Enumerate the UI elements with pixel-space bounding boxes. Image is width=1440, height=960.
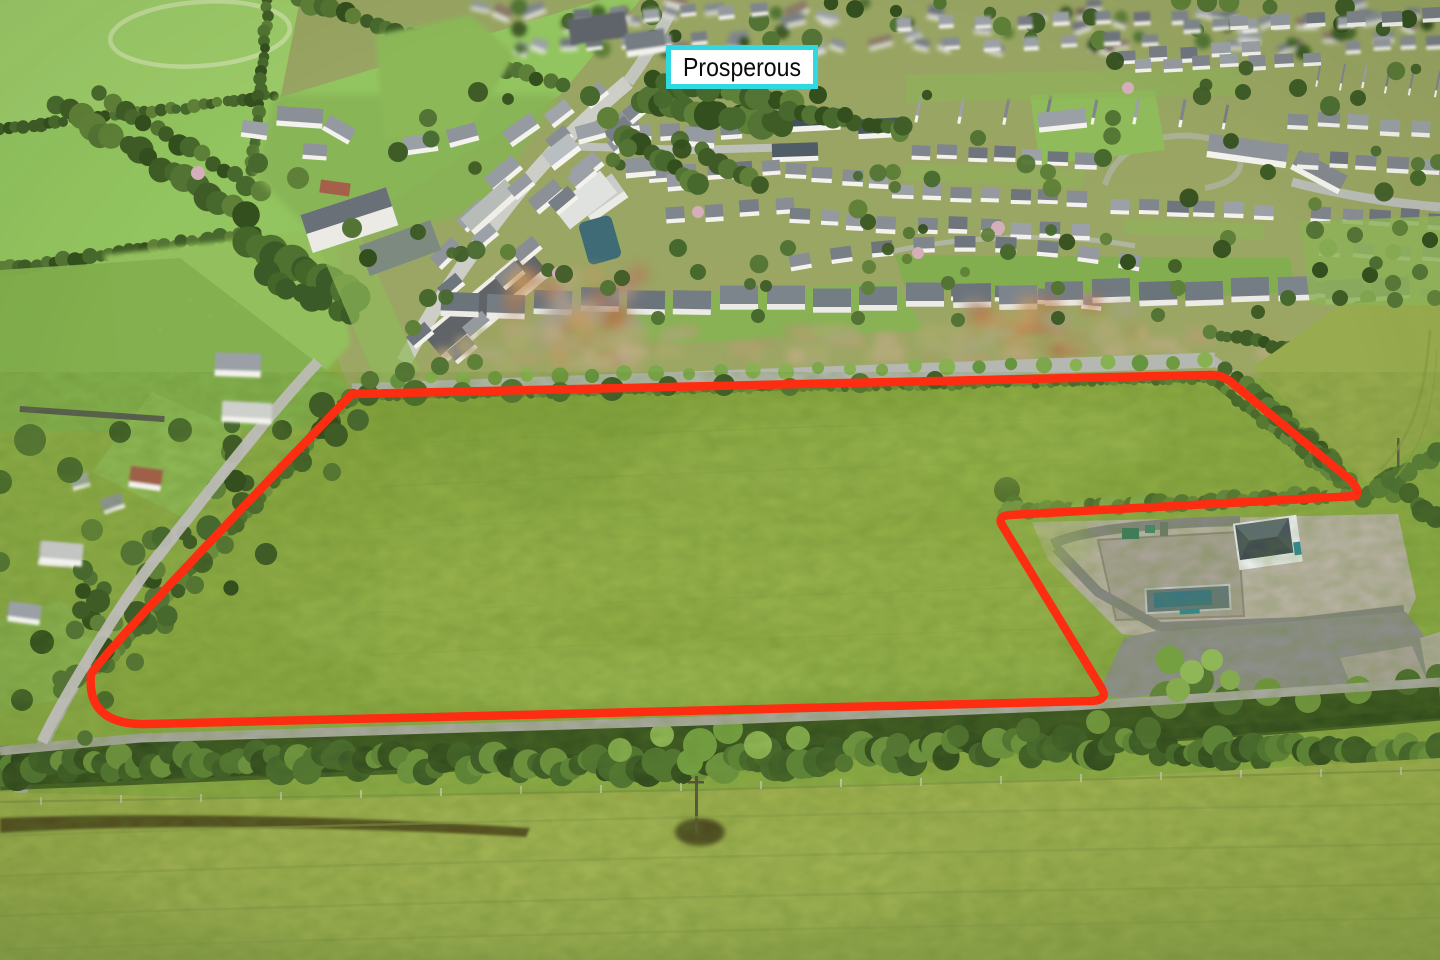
svg-text:Prosperous: Prosperous — [683, 52, 801, 82]
